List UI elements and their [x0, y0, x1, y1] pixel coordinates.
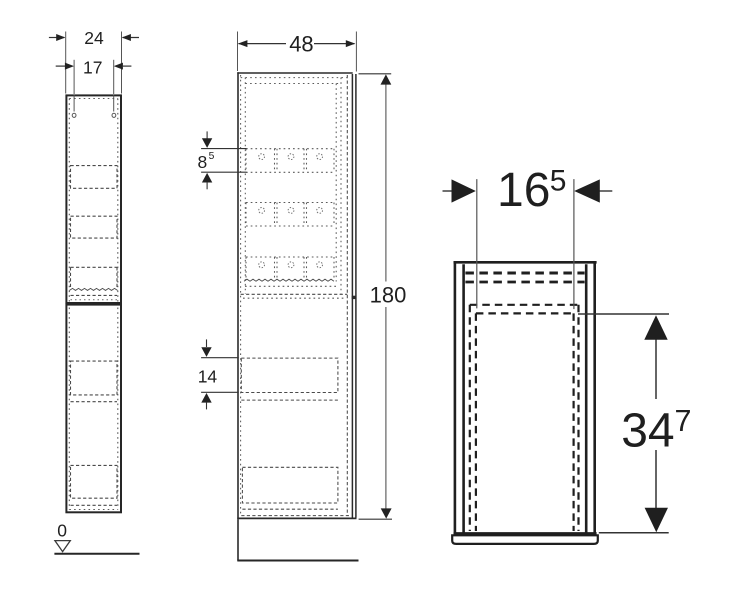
svg-text:14: 14: [198, 366, 218, 386]
svg-text:5: 5: [209, 151, 215, 162]
svg-text:8: 8: [198, 152, 208, 172]
svg-text:24: 24: [84, 28, 104, 48]
svg-text:17: 17: [83, 57, 102, 77]
svg-text:7: 7: [675, 404, 692, 438]
svg-text:16: 16: [497, 164, 550, 217]
svg-text:48: 48: [289, 32, 313, 57]
svg-text:34: 34: [621, 404, 674, 457]
svg-text:180: 180: [370, 282, 407, 307]
svg-text:5: 5: [550, 165, 567, 198]
svg-text:0: 0: [57, 520, 67, 540]
